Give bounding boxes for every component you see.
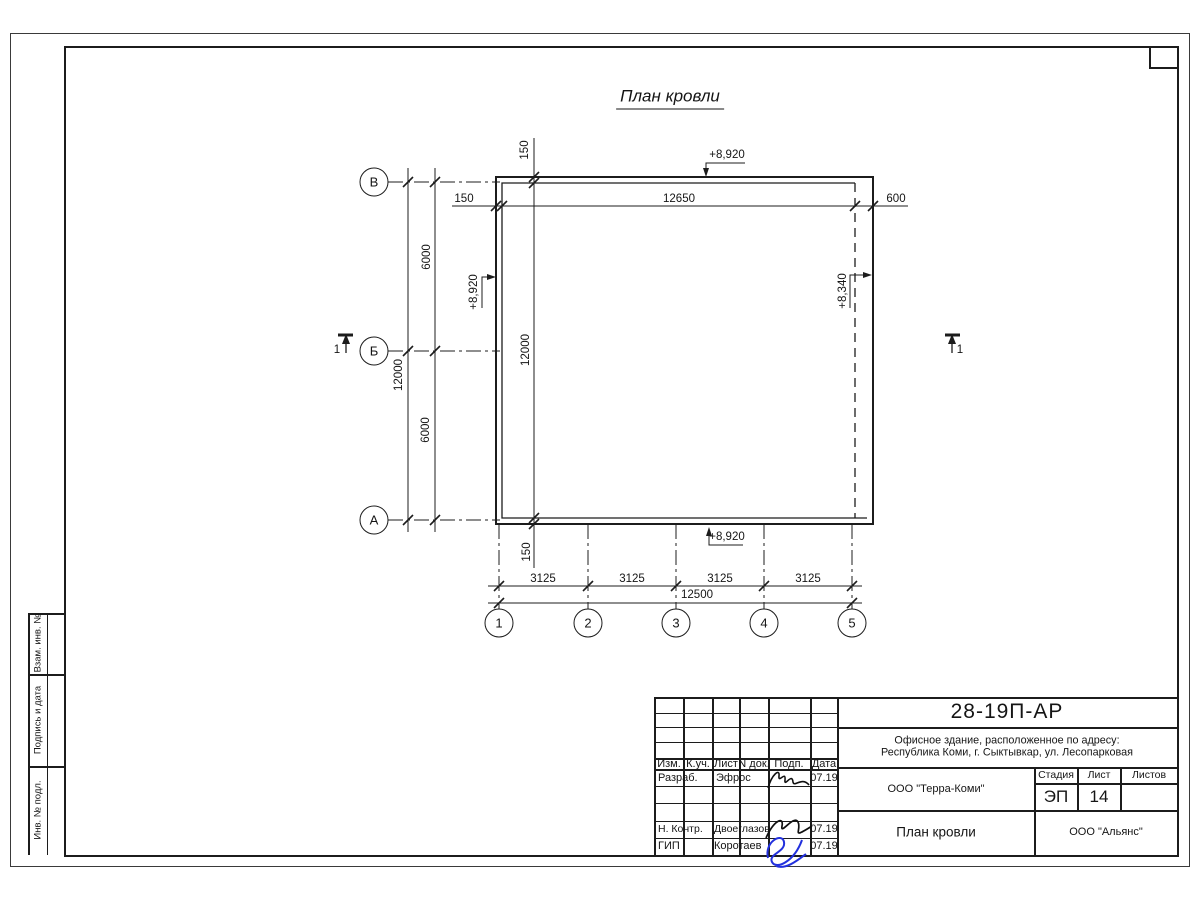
axis-circle-row: А [360, 506, 389, 535]
strip-label-inv: Инв. № подл. [33, 780, 44, 839]
elevation-left: +8,920 [468, 274, 480, 310]
stamp-stage-label: Стадия [1038, 769, 1074, 781]
stamp-col-ndok: N док. [738, 758, 769, 770]
plan-linework [0, 0, 1200, 900]
stamp-sheet-label: Лист [1088, 769, 1111, 781]
dim-top-right: 600 [886, 193, 905, 205]
dim-parapet-top: 150 [519, 140, 531, 159]
elevation-right: +8,340 [837, 273, 849, 309]
strip-line [47, 613, 48, 855]
stamp-line [654, 742, 838, 743]
axis-circle-col: 3 [662, 609, 691, 638]
section-label-right: 1 [957, 344, 963, 356]
stamp-role: Разраб. [658, 772, 698, 784]
stamp-org2: ООО "Альянс" [1069, 826, 1143, 838]
stamp-line [654, 713, 838, 714]
stamp-address-line2: Республика Коми, г. Сыктывкар, ул. Лесоп… [881, 747, 1133, 759]
dim-col-spacing: 3125 [530, 573, 556, 585]
axis-label: А [370, 513, 379, 528]
axis-circle-col: 5 [838, 609, 867, 638]
axis-label: 5 [848, 616, 855, 631]
axis-label: В [370, 175, 379, 190]
dim-col-spacing: 3125 [619, 573, 645, 585]
stamp-date: 07.19 [810, 772, 838, 784]
dim-col-spacing: 3125 [707, 573, 733, 585]
dim-col-spacing: 3125 [795, 573, 821, 585]
elevation-arrowheads [487, 168, 872, 536]
drawing-sheet: План кровли [0, 0, 1200, 900]
stamp-role: ГИП [658, 840, 680, 852]
dim-top-span: 12650 [663, 193, 695, 205]
elevation-top: +8,920 [709, 149, 745, 161]
elevation-leaders [482, 163, 868, 545]
stamp-line [1077, 767, 1079, 810]
strip-line [28, 674, 65, 676]
stamp-drawing-title: План кровли [896, 825, 976, 840]
stamp-stage-value: ЭП [1044, 787, 1068, 807]
dimension-lines [408, 138, 908, 603]
stamp-line [838, 767, 1177, 769]
stamp-line [838, 810, 1177, 812]
stamp-org1: ООО "Терра-Коми" [887, 783, 984, 795]
signature-gip [762, 830, 810, 874]
stamp-doc-number: 28-19П-АР [951, 700, 1064, 724]
stamp-line [654, 697, 656, 855]
elevation-bottom: +8,920 [709, 531, 745, 543]
stamp-line [1120, 767, 1122, 810]
axis-label: 1 [495, 616, 502, 631]
dimension-ticks [403, 172, 878, 608]
strip-line [28, 613, 30, 855]
stamp-address-line1: Офисное здание, расположенное по адресу: [894, 735, 1119, 747]
stamp-line [654, 697, 1177, 699]
section-label-left: 1 [334, 344, 340, 356]
dim-col-total: 12500 [681, 589, 713, 601]
stamp-line [654, 803, 838, 804]
dim-row-spacing: 6000 [421, 244, 433, 270]
stamp-name: Коротаев [714, 840, 762, 852]
roof-outline [496, 177, 873, 524]
signature-razrab [766, 764, 812, 794]
axis-lines [388, 182, 852, 609]
axis-label: 2 [584, 616, 591, 631]
axis-label: 4 [760, 616, 767, 631]
axis-label: 3 [672, 616, 679, 631]
axis-circle-row: В [360, 168, 389, 197]
dim-internal-span: 12000 [520, 334, 532, 366]
strip-line [28, 766, 65, 768]
stamp-sheet-value: 14 [1090, 787, 1109, 807]
dim-row-spacing: 6000 [420, 417, 432, 443]
stamp-col-kuch: К.уч. [686, 758, 710, 770]
stamp-col-data: Дата [812, 758, 836, 770]
dim-row-total: 12000 [393, 359, 405, 391]
axis-circle-col: 2 [574, 609, 603, 638]
strip-label-vzam: Взам. инв. № [33, 614, 44, 673]
section-marks [338, 334, 960, 353]
stamp-name: Эфрос [716, 772, 751, 784]
axis-label: Б [370, 344, 379, 359]
stamp-sheets-label: Листов [1132, 769, 1166, 781]
dim-parapet-bottom: 150 [521, 542, 533, 561]
axis-circle-col: 4 [750, 609, 779, 638]
stamp-line [654, 727, 838, 728]
stamp-role: Н. Контр. [658, 823, 703, 835]
stamp-line [1034, 783, 1177, 785]
strip-label-podpis: Подпись и дата [33, 686, 44, 754]
stamp-col-list: Лист [714, 758, 738, 770]
stamp-col-izm: Изм. [657, 758, 681, 770]
axis-circle-col: 1 [485, 609, 514, 638]
axis-circle-row: Б [360, 337, 389, 366]
dim-top-left: 150 [454, 193, 473, 205]
stamp-line [838, 727, 1177, 729]
